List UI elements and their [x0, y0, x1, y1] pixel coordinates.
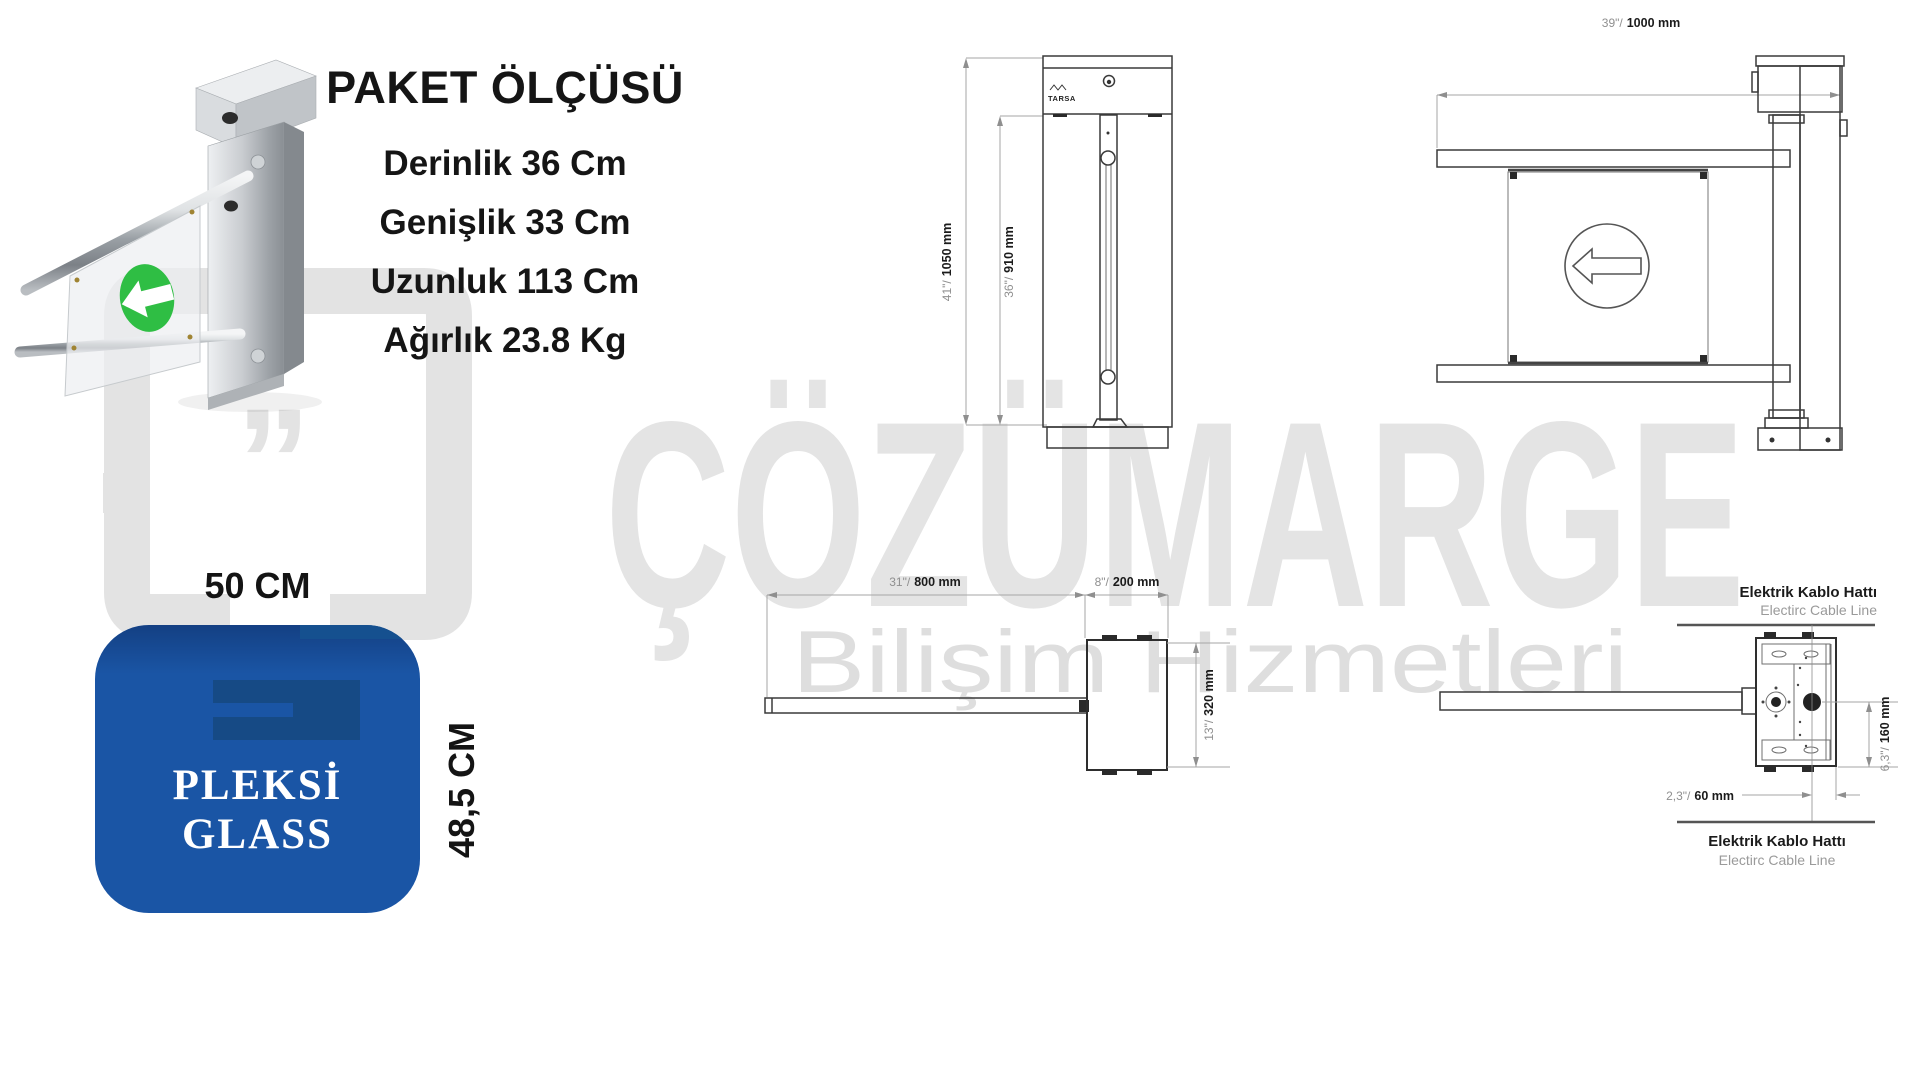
plan-view-drawing: 31"/800 mm 8"/200 mm 13"/320 mm: [755, 555, 1235, 790]
dim-front-panel: 36"/910 mm: [1002, 226, 1016, 298]
front-view-drawing: 41"/1050 mm 36"/910 mm TARSA: [930, 30, 1260, 455]
pleksi-width-label: 50 CM: [95, 565, 420, 607]
dim-cabinet-depth: 13"/320 mm: [1202, 669, 1216, 741]
dim-arm-length: 31"/800 mm: [889, 575, 961, 589]
brand-logo-text: TARSA: [1048, 94, 1076, 103]
hinge-column: [1773, 115, 1800, 418]
cable-line-label-en-bottom: Electirc Cable Line: [1719, 852, 1836, 868]
top-arm: [1437, 150, 1790, 167]
package-width: Genişlik 33 Cm: [325, 203, 685, 243]
pleksi-height-label: 48,5 CM: [441, 700, 483, 880]
package-depth: Derinlik 36 Cm: [325, 144, 685, 184]
cabinet-base: [1047, 427, 1168, 448]
product-photo: [0, 15, 340, 415]
direction-circle-icon: [1565, 224, 1649, 308]
cable-detail-drawing: Elektrik Kablo Hattı Electirc Cable Line: [1425, 570, 1915, 880]
dim-cable-vertical: 6,3"/160 mm: [1878, 697, 1892, 772]
side-view-cabinet: [1752, 56, 1847, 450]
cabinet-plan: [1087, 635, 1167, 775]
turnstile-cabinet: [196, 60, 316, 410]
direction-arrow-icon: [1573, 249, 1641, 283]
top-knob: [222, 112, 238, 124]
package-size-title: PAKET ÖLÇÜSÜ: [325, 62, 685, 114]
package-size-block: PAKET ÖLÇÜSÜ Derinlik 36 Cm Genişlik 33 …: [325, 62, 685, 380]
dim-cabinet-width: 8"/200 mm: [1095, 575, 1160, 589]
package-length: Uzunluk 113 Cm: [325, 262, 685, 302]
bottom-arm: [1437, 365, 1790, 382]
glass-panel: [1508, 172, 1708, 362]
pleksi-glass-panel: PLEKSİ GLASS: [95, 625, 420, 913]
crown-icon: [1050, 85, 1066, 90]
front-view-cabinet: TARSA: [1043, 56, 1172, 448]
cable-line-label-en-top: Electirc Cable Line: [1760, 602, 1877, 618]
dim-front-height: 41"/1050 mm: [940, 223, 954, 301]
front-knob: [224, 201, 238, 212]
arm-plan: [765, 698, 1087, 713]
arm-plan: [1440, 692, 1742, 710]
cable-line-label-tr-top: Elektrik Kablo Hattı: [1739, 584, 1877, 601]
logo-square-icon: [103, 473, 140, 513]
dim-top-width: 39"/1000 mm: [1602, 16, 1680, 30]
pleksi-glass-label: PLEKSİ GLASS: [95, 761, 420, 859]
dim-cable-horizontal: 2,3"/60 mm: [1666, 789, 1734, 803]
package-weight: Ağırlık 23.8 Kg: [325, 321, 685, 361]
spec-sheet: ” ÇÖZÜMARGE Bilişim Hizmetleri: [0, 0, 1920, 1080]
anchor-bolt-icon: [1771, 697, 1781, 707]
cable-line-label-tr-bottom: Elektrik Kablo Hattı: [1708, 833, 1846, 850]
side-view-drawing: 39"/1000 mm: [1415, 5, 1880, 455]
